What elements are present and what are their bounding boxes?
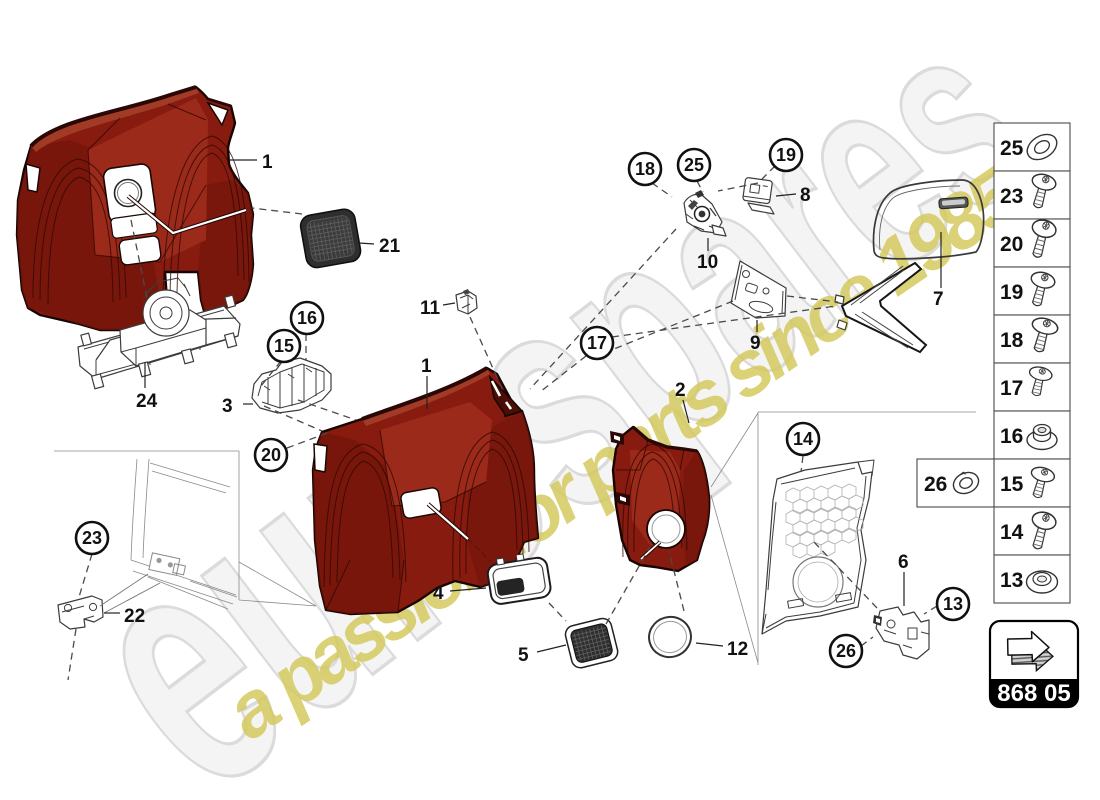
svg-text:18: 18 <box>1000 329 1024 352</box>
svg-text:13: 13 <box>943 594 963 614</box>
svg-text:17: 17 <box>1000 377 1023 400</box>
svg-text:12: 12 <box>727 639 748 660</box>
svg-text:8: 8 <box>800 185 811 206</box>
svg-text:4: 4 <box>433 583 444 604</box>
svg-text:16: 16 <box>297 308 317 328</box>
svg-text:15: 15 <box>1000 473 1024 496</box>
svg-text:14: 14 <box>1000 521 1024 544</box>
svg-text:15: 15 <box>274 336 294 356</box>
svg-text:13: 13 <box>1000 569 1023 592</box>
svg-text:3: 3 <box>222 396 233 417</box>
svg-text:1: 1 <box>421 356 432 377</box>
svg-text:2: 2 <box>675 380 686 401</box>
svg-text:868 05: 868 05 <box>997 680 1070 707</box>
svg-text:26: 26 <box>836 641 856 661</box>
svg-text:24: 24 <box>136 391 158 412</box>
svg-text:11: 11 <box>420 298 441 319</box>
svg-text:18: 18 <box>635 159 655 179</box>
svg-text:14: 14 <box>793 429 813 449</box>
svg-text:5: 5 <box>518 645 529 666</box>
svg-text:16: 16 <box>1000 425 1023 448</box>
svg-text:19: 19 <box>1000 281 1023 304</box>
svg-text:22: 22 <box>124 606 145 627</box>
svg-text:10: 10 <box>697 252 718 273</box>
svg-text:1: 1 <box>262 152 273 173</box>
svg-text:25: 25 <box>684 155 704 175</box>
svg-text:21: 21 <box>379 236 401 257</box>
svg-text:17: 17 <box>587 333 607 353</box>
svg-text:23: 23 <box>1000 185 1023 208</box>
svg-text:9: 9 <box>750 333 761 354</box>
svg-text:25: 25 <box>1000 137 1024 160</box>
svg-text:7: 7 <box>933 289 944 310</box>
svg-text:20: 20 <box>261 445 281 465</box>
svg-text:26: 26 <box>924 473 947 496</box>
svg-text:20: 20 <box>1000 233 1023 256</box>
svg-text:23: 23 <box>82 528 102 548</box>
svg-text:19: 19 <box>776 145 796 165</box>
svg-text:6: 6 <box>898 552 909 573</box>
